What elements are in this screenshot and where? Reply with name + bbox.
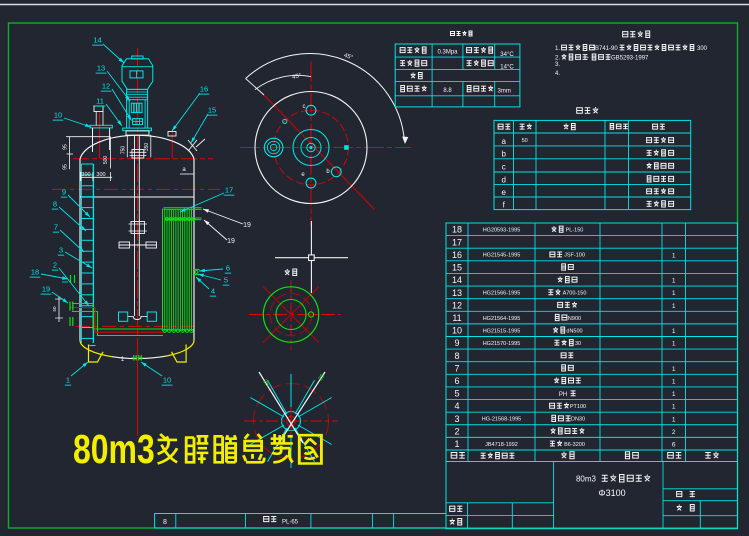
- svg-text:2: 2: [53, 261, 57, 270]
- svg-text:17: 17: [225, 186, 233, 195]
- svg-text:1: 1: [66, 376, 70, 385]
- svg-text:500: 500: [103, 156, 109, 165]
- svg-text:0.3Mpa: 0.3Mpa: [437, 50, 458, 56]
- svg-text:2: 2: [672, 429, 676, 436]
- svg-text:5: 5: [224, 276, 228, 285]
- svg-text:15: 15: [452, 263, 462, 273]
- svg-text:a: a: [501, 137, 506, 146]
- svg-text:1: 1: [672, 278, 676, 285]
- svg-text:95: 95: [63, 164, 69, 170]
- svg-text:14: 14: [452, 275, 462, 285]
- svg-text:9: 9: [454, 338, 459, 348]
- svg-text:1: 1: [672, 303, 676, 310]
- svg-text:12: 12: [452, 300, 462, 310]
- svg-text:19: 19: [243, 222, 251, 229]
- svg-text:50: 50: [522, 138, 528, 144]
- svg-text:8: 8: [53, 200, 57, 209]
- svg-text:6: 6: [672, 441, 676, 448]
- svg-text:14: 14: [93, 36, 101, 45]
- svg-text:7: 7: [54, 223, 58, 232]
- svg-text:300: 300: [96, 172, 105, 178]
- svg-text:8: 8: [163, 519, 167, 526]
- svg-text:350: 350: [144, 143, 150, 152]
- svg-text:34°C: 34°C: [500, 52, 514, 58]
- svg-text:300: 300: [81, 172, 90, 178]
- svg-text:1: 1: [672, 404, 676, 411]
- svg-text:18: 18: [31, 268, 39, 277]
- svg-text:PH: PH: [559, 392, 567, 398]
- svg-text:1: 1: [672, 416, 676, 423]
- svg-text:N900: N900: [568, 316, 581, 322]
- svg-text:1: 1: [672, 290, 676, 297]
- svg-text:19: 19: [227, 238, 235, 245]
- svg-text:4.: 4.: [555, 71, 560, 77]
- svg-text:4: 4: [454, 401, 459, 411]
- svg-text:4: 4: [211, 287, 215, 296]
- svg-text:10: 10: [163, 376, 171, 385]
- svg-text:HG-21568-1995: HG-21568-1995: [482, 417, 521, 423]
- svg-text:18: 18: [452, 225, 462, 235]
- svg-text:DN30: DN30: [571, 417, 585, 423]
- svg-text:300: 300: [697, 46, 708, 52]
- svg-text:HG20593-1995: HG20593-1995: [483, 228, 521, 234]
- svg-text:HG21515-1995: HG21515-1995: [483, 328, 521, 334]
- svg-text:8.8: 8.8: [443, 88, 452, 94]
- svg-text:JB4718-1992: JB4718-1992: [485, 442, 518, 448]
- svg-text:15: 15: [208, 106, 216, 115]
- svg-text:12: 12: [102, 82, 110, 91]
- svg-text:8: 8: [454, 351, 459, 361]
- svg-text:PL-65: PL-65: [282, 520, 299, 526]
- svg-text:HG21545-1995: HG21545-1995: [483, 253, 521, 259]
- svg-text:750: 750: [120, 146, 126, 155]
- svg-text:3: 3: [454, 414, 459, 424]
- svg-text:17: 17: [452, 237, 462, 247]
- svg-text:13: 13: [97, 64, 105, 73]
- svg-text:1: 1: [454, 439, 459, 449]
- svg-text:1: 1: [672, 366, 676, 373]
- svg-text:14°C: 14°C: [500, 65, 514, 71]
- svg-text:-: -: [587, 56, 589, 62]
- svg-text:2: 2: [454, 426, 459, 436]
- svg-text:c: c: [303, 104, 306, 110]
- svg-text:HG21570-1995: HG21570-1995: [483, 341, 521, 347]
- svg-text:6: 6: [226, 264, 230, 273]
- svg-text:GB5293-1997: GB5293-1997: [611, 56, 649, 62]
- svg-text:80m3: 80m3: [576, 475, 597, 484]
- svg-text:2.: 2.: [555, 56, 560, 62]
- svg-text:B6-3200: B6-3200: [564, 442, 585, 448]
- svg-text:11: 11: [96, 97, 104, 106]
- svg-text:HG21566-1995: HG21566-1995: [483, 291, 521, 297]
- svg-text:HG21564-1995: HG21564-1995: [483, 316, 521, 322]
- svg-text:3mm: 3mm: [498, 89, 511, 95]
- svg-text:3.: 3.: [555, 62, 560, 68]
- svg-text:Φ3100: Φ3100: [598, 488, 625, 498]
- svg-text:A700-150: A700-150: [563, 291, 587, 297]
- svg-text:1.: 1.: [555, 46, 560, 52]
- svg-text:19: 19: [42, 285, 50, 294]
- svg-text:JSF-100: JSF-100: [564, 253, 585, 259]
- svg-text:1: 1: [672, 378, 676, 385]
- svg-text:50: 50: [52, 306, 57, 312]
- svg-text:9: 9: [62, 188, 66, 197]
- svg-text:10: 10: [54, 111, 62, 120]
- svg-text:3: 3: [59, 246, 63, 255]
- svg-text:11: 11: [452, 313, 461, 323]
- svg-text:c: c: [502, 163, 506, 172]
- svg-text:dN500: dN500: [566, 328, 582, 334]
- svg-text:16: 16: [452, 250, 462, 260]
- svg-text:80m3: 80m3: [73, 426, 155, 472]
- svg-text:10: 10: [452, 326, 462, 336]
- svg-text:JB741-90: JB741-90: [592, 46, 618, 52]
- svg-text:1: 1: [672, 328, 676, 335]
- svg-text:5: 5: [454, 389, 459, 399]
- svg-text:7: 7: [454, 363, 459, 373]
- svg-text:1: 1: [672, 252, 676, 259]
- svg-text:6: 6: [454, 376, 459, 386]
- svg-text:e: e: [501, 188, 506, 197]
- svg-text:30: 30: [575, 341, 581, 347]
- svg-text:b: b: [501, 150, 506, 159]
- svg-text:PL-150: PL-150: [566, 228, 584, 234]
- svg-text:PT100: PT100: [570, 404, 586, 410]
- svg-text:d: d: [501, 176, 505, 185]
- svg-text:16: 16: [200, 85, 208, 94]
- svg-text:1: 1: [672, 391, 676, 398]
- svg-text:95: 95: [63, 144, 69, 150]
- svg-text:1: 1: [672, 341, 676, 348]
- svg-text:13: 13: [452, 288, 462, 298]
